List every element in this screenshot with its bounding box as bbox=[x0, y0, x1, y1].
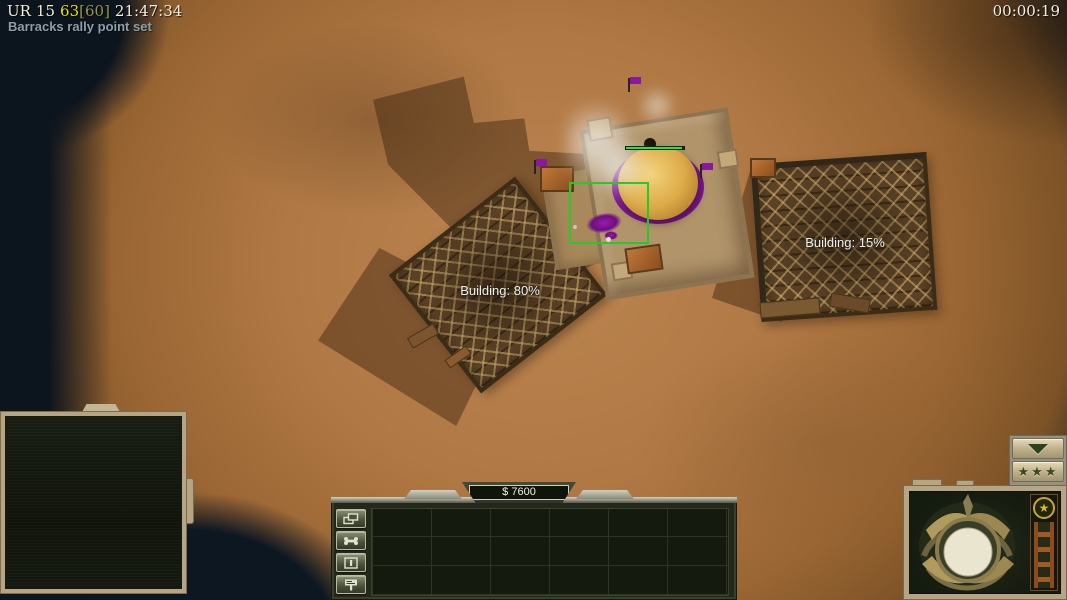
smoke-effect bbox=[640, 86, 674, 126]
match-timer: 00:00:19 bbox=[993, 2, 1060, 20]
three-stars-icon: ★★★ bbox=[1018, 462, 1059, 481]
event-message: Barracks rally point set bbox=[8, 19, 152, 34]
money-tab-wing bbox=[576, 490, 634, 499]
signpost-button[interactable] bbox=[336, 575, 366, 594]
market-stall bbox=[624, 244, 663, 275]
faction-flag bbox=[700, 164, 702, 178]
debug-readout: UR1563[60]21:47:34 bbox=[7, 2, 182, 20]
fps-counter: 63 bbox=[60, 2, 79, 20]
faction-flag bbox=[534, 160, 536, 174]
signpost-icon bbox=[343, 578, 359, 591]
minimap-panel[interactable] bbox=[0, 411, 187, 594]
pause-button[interactable] bbox=[336, 553, 366, 572]
pause-icon bbox=[343, 557, 359, 569]
game-screen: Building: 80% Building: 15% UR1563[60]21… bbox=[0, 0, 1067, 600]
general-rank-button[interactable]: ★★★ bbox=[1012, 461, 1064, 482]
hide-controlbar-button[interactable] bbox=[1012, 438, 1064, 459]
selection-box bbox=[569, 182, 649, 244]
health-bar-fill bbox=[626, 147, 682, 149]
rank-star-badge: ★ bbox=[1033, 497, 1055, 519]
experience-bar bbox=[1034, 522, 1054, 588]
faction-emblem bbox=[912, 494, 1026, 593]
experience-strip: ★ bbox=[1030, 494, 1058, 591]
health-bar bbox=[625, 146, 685, 150]
chevron-down-icon bbox=[1028, 444, 1048, 454]
money-display: $ 7600 bbox=[469, 485, 569, 500]
unit-portrait[interactable]: ★ bbox=[909, 491, 1061, 594]
money-tab: $ 7600 bbox=[462, 482, 576, 503]
bone-icon bbox=[343, 535, 359, 547]
debug-value: 15 bbox=[36, 2, 55, 20]
command-button-grid[interactable] bbox=[371, 508, 729, 596]
debug-label: UR bbox=[7, 2, 31, 20]
minimap-notch bbox=[187, 478, 194, 524]
windows-button[interactable] bbox=[336, 509, 366, 528]
money-tab-wing bbox=[404, 490, 462, 499]
fps-cap: [60] bbox=[79, 2, 110, 20]
wall-tower bbox=[717, 149, 740, 170]
debug-clock: 21:47:34 bbox=[115, 2, 182, 20]
construction-progress-label: Building: 80% bbox=[420, 283, 580, 298]
market-stall bbox=[750, 158, 776, 178]
windows-icon bbox=[343, 513, 359, 525]
minimap-screen[interactable] bbox=[5, 416, 182, 589]
construction-progress-label: Building: 15% bbox=[765, 235, 925, 250]
unit-portrait-panel: ★ bbox=[903, 485, 1067, 600]
command-bar-side-buttons bbox=[336, 509, 368, 594]
corner-button-group: ★★★ bbox=[1009, 435, 1067, 486]
bone-button[interactable] bbox=[336, 531, 366, 550]
faction-flag bbox=[628, 78, 630, 92]
